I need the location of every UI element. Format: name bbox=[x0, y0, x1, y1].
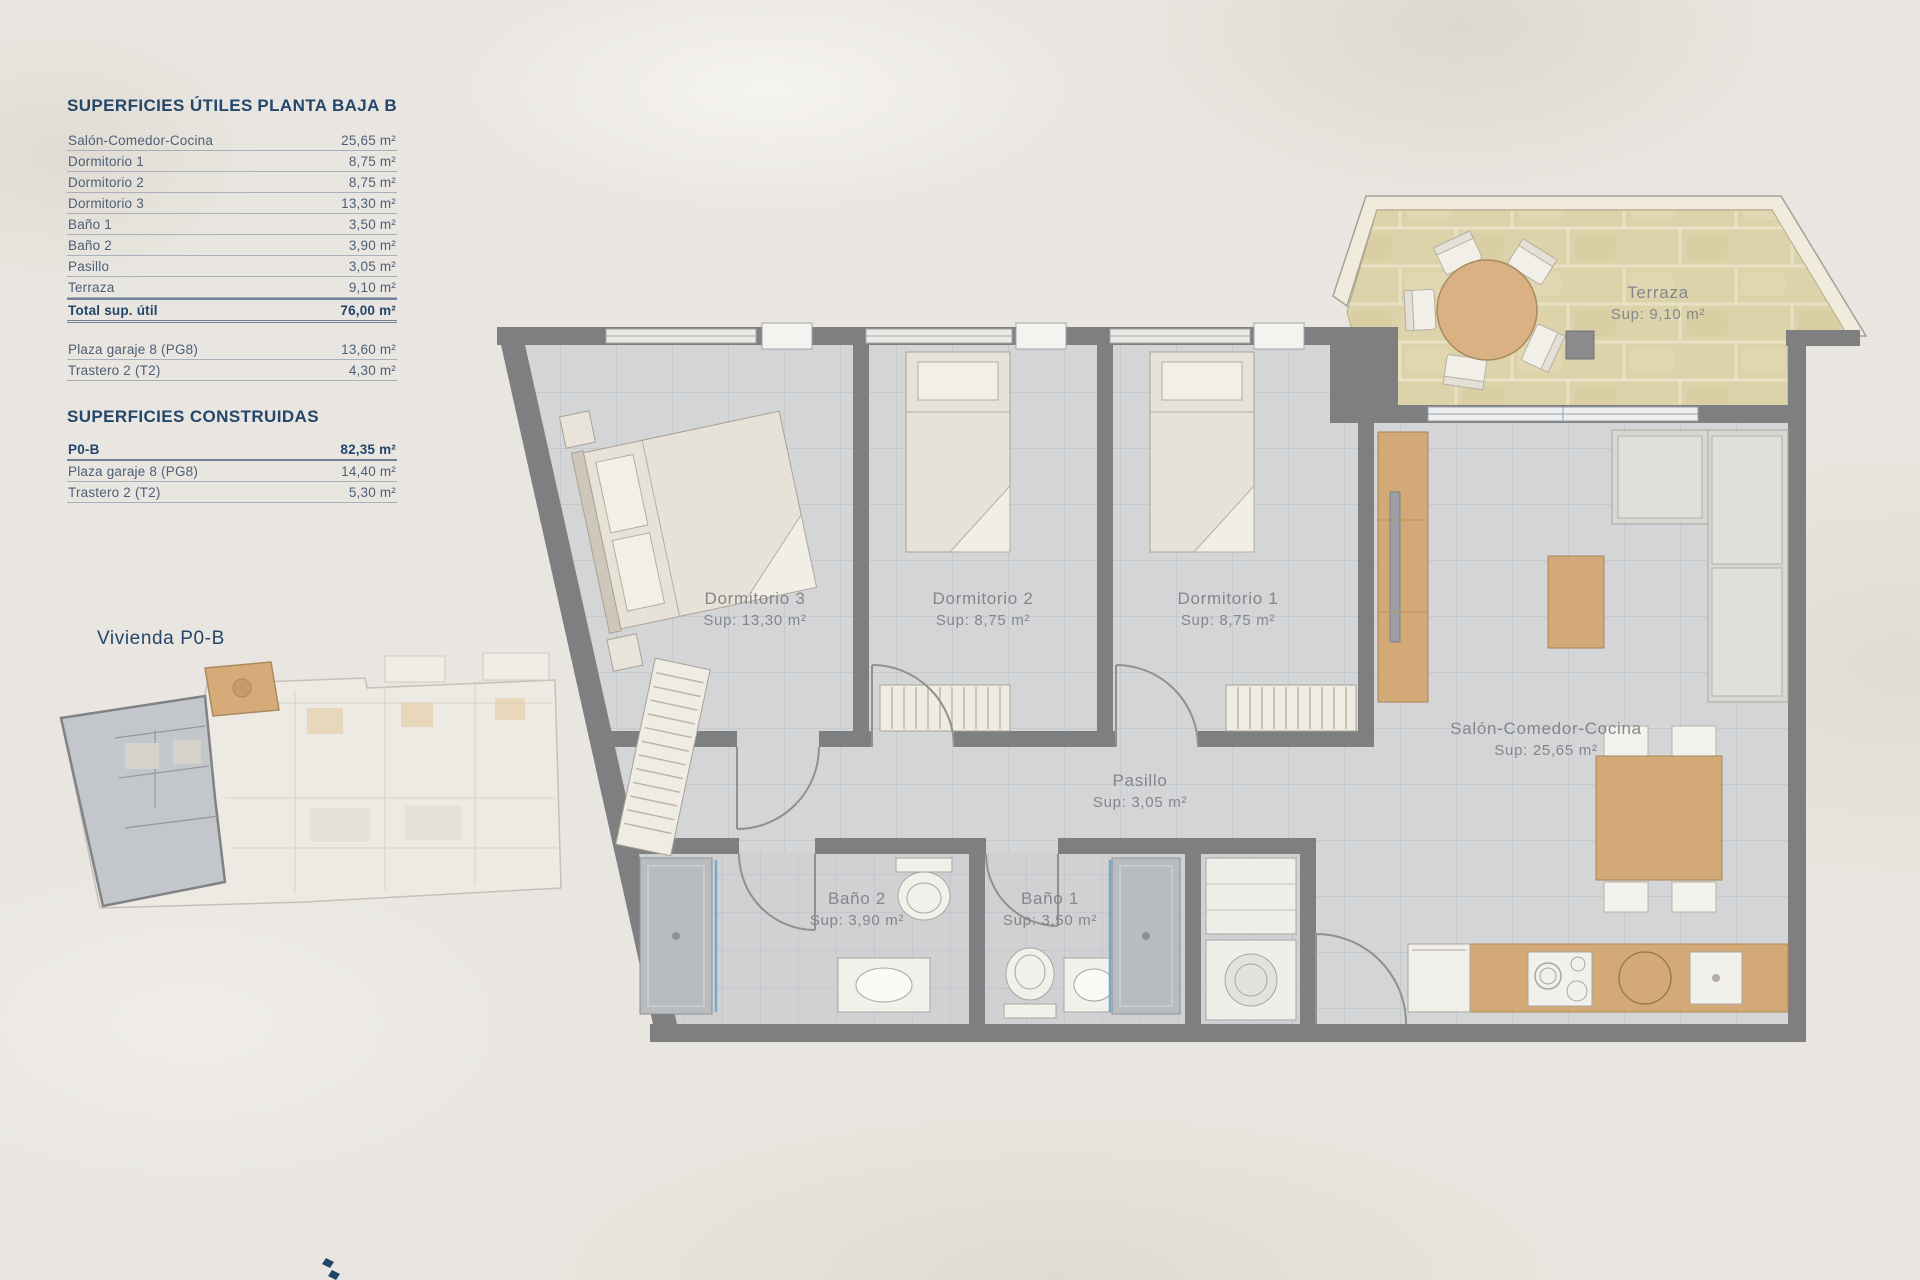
room-label-bano-1: Baño 1 Sup: 3,50 m² bbox=[1003, 888, 1097, 931]
room-label-pasillo: Pasillo Sup: 3,05 m² bbox=[1093, 770, 1187, 813]
room-area: Sup: 8,75 m² bbox=[933, 611, 1034, 631]
room-name: Dormitorio 1 bbox=[1178, 588, 1279, 611]
toilet-tank bbox=[896, 858, 952, 872]
room-name: Pasillo bbox=[1093, 770, 1187, 793]
room-name: Terraza bbox=[1611, 282, 1705, 305]
toilet-tank bbox=[1004, 1004, 1056, 1018]
room-area: Sup: 3,50 m² bbox=[1003, 911, 1097, 931]
floor-plan-svg bbox=[0, 0, 1920, 1280]
kitchen-counter bbox=[1408, 944, 1788, 1012]
room-label-bano-2: Baño 2 Sup: 3,90 m² bbox=[810, 888, 904, 931]
room-label-dormitorio-3: Dormitorio 3 Sup: 13,30 m² bbox=[703, 588, 806, 631]
room-label-dormitorio-1: Dormitorio 1 Sup: 8,75 m² bbox=[1178, 588, 1279, 631]
terrace bbox=[1333, 196, 1866, 410]
coffee-table bbox=[1548, 556, 1604, 648]
room-name: Dormitorio 2 bbox=[933, 588, 1034, 611]
toilet-bowl bbox=[1006, 948, 1054, 1000]
logo-mark-icon bbox=[320, 1256, 346, 1280]
room-name: Salón-Comedor-Cocina bbox=[1450, 718, 1642, 741]
room-name: Baño 2 bbox=[810, 888, 904, 911]
bed-dormitorio-1 bbox=[1150, 352, 1254, 552]
room-area: Sup: 9,10 m² bbox=[1611, 305, 1705, 325]
terrace-pillar bbox=[1566, 331, 1594, 359]
room-area: Sup: 25,65 m² bbox=[1450, 741, 1642, 761]
bed-dormitorio-2 bbox=[906, 352, 1010, 552]
room-name: Baño 1 bbox=[1003, 888, 1097, 911]
room-label-terraza: Terraza Sup: 9,10 m² bbox=[1611, 282, 1705, 325]
dining-table bbox=[1596, 756, 1722, 880]
terrace-round-table bbox=[1437, 260, 1537, 360]
room-name: Dormitorio 3 bbox=[703, 588, 806, 611]
tv-sideboard bbox=[1378, 432, 1428, 702]
fridge bbox=[1408, 944, 1470, 1012]
room-label-dormitorio-2: Dormitorio 2 Sup: 8,75 m² bbox=[933, 588, 1034, 631]
room-area: Sup: 3,05 m² bbox=[1093, 793, 1187, 813]
room-area: Sup: 3,90 m² bbox=[810, 911, 904, 931]
room-label-salon-comedor-cocina: Salón-Comedor-Cocina Sup: 25,65 m² bbox=[1450, 718, 1642, 761]
closet-dormitorio-1 bbox=[1226, 685, 1356, 731]
room-area: Sup: 8,75 m² bbox=[1178, 611, 1279, 631]
room-area: Sup: 13,30 m² bbox=[703, 611, 806, 631]
